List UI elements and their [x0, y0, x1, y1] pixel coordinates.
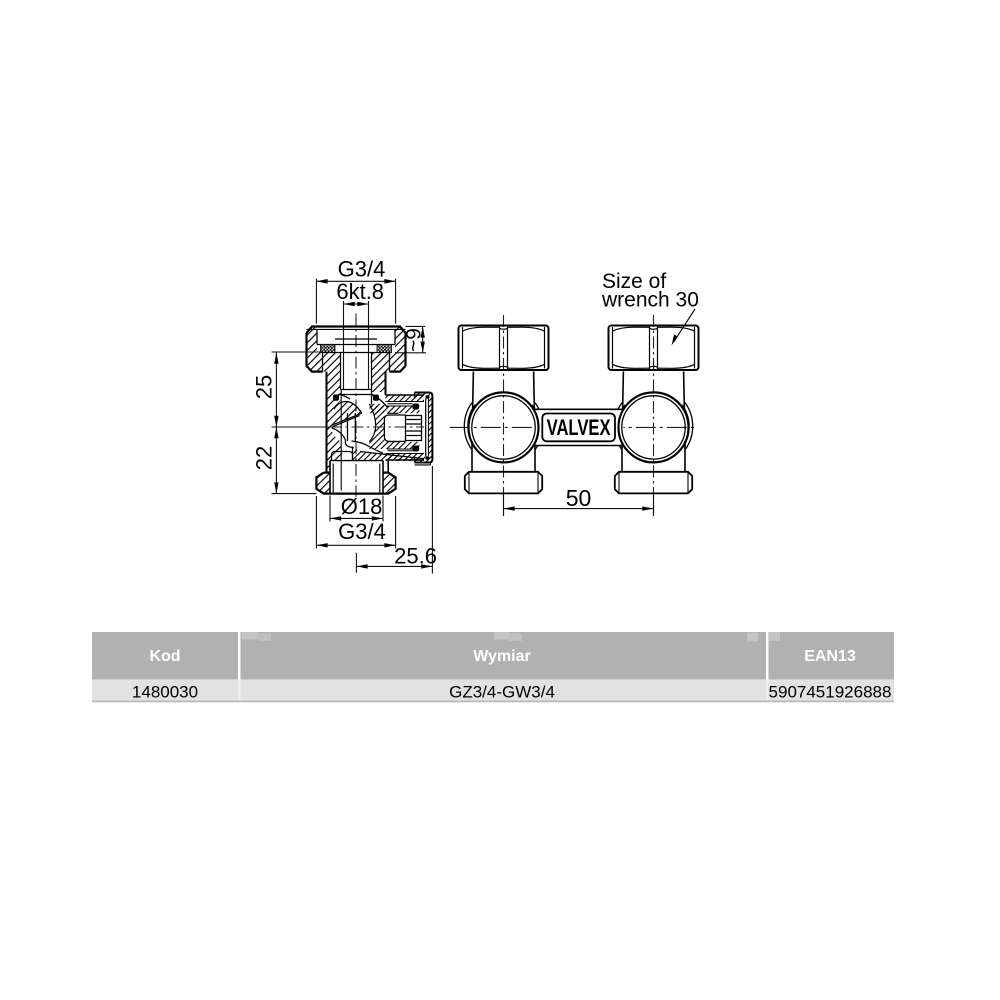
svg-text:wrench 30: wrench 30	[601, 289, 699, 312]
svg-text:25: 25	[252, 375, 277, 399]
svg-text:25.6: 25.6	[394, 543, 437, 568]
svg-text:50: 50	[566, 485, 592, 511]
svg-text:G3/4: G3/4	[338, 519, 386, 544]
svg-text:22: 22	[252, 446, 277, 470]
svg-text:G3/4: G3/4	[338, 257, 386, 282]
svg-text:VALVEX: VALVEX	[547, 415, 611, 440]
svg-text:1480030: 1480030	[132, 683, 198, 702]
svg-text:Wymiar: Wymiar	[473, 648, 531, 665]
svg-text:Ø18: Ø18	[341, 494, 383, 519]
svg-text:~9: ~9	[403, 328, 426, 352]
svg-text:Kod: Kod	[149, 648, 180, 665]
svg-text:EAN13: EAN13	[804, 648, 856, 665]
svg-text:6kt.8: 6kt.8	[336, 279, 384, 304]
svg-text:5907451926888: 5907451926888	[769, 683, 892, 702]
svg-text:GZ3/4-GW3/4: GZ3/4-GW3/4	[449, 683, 555, 702]
